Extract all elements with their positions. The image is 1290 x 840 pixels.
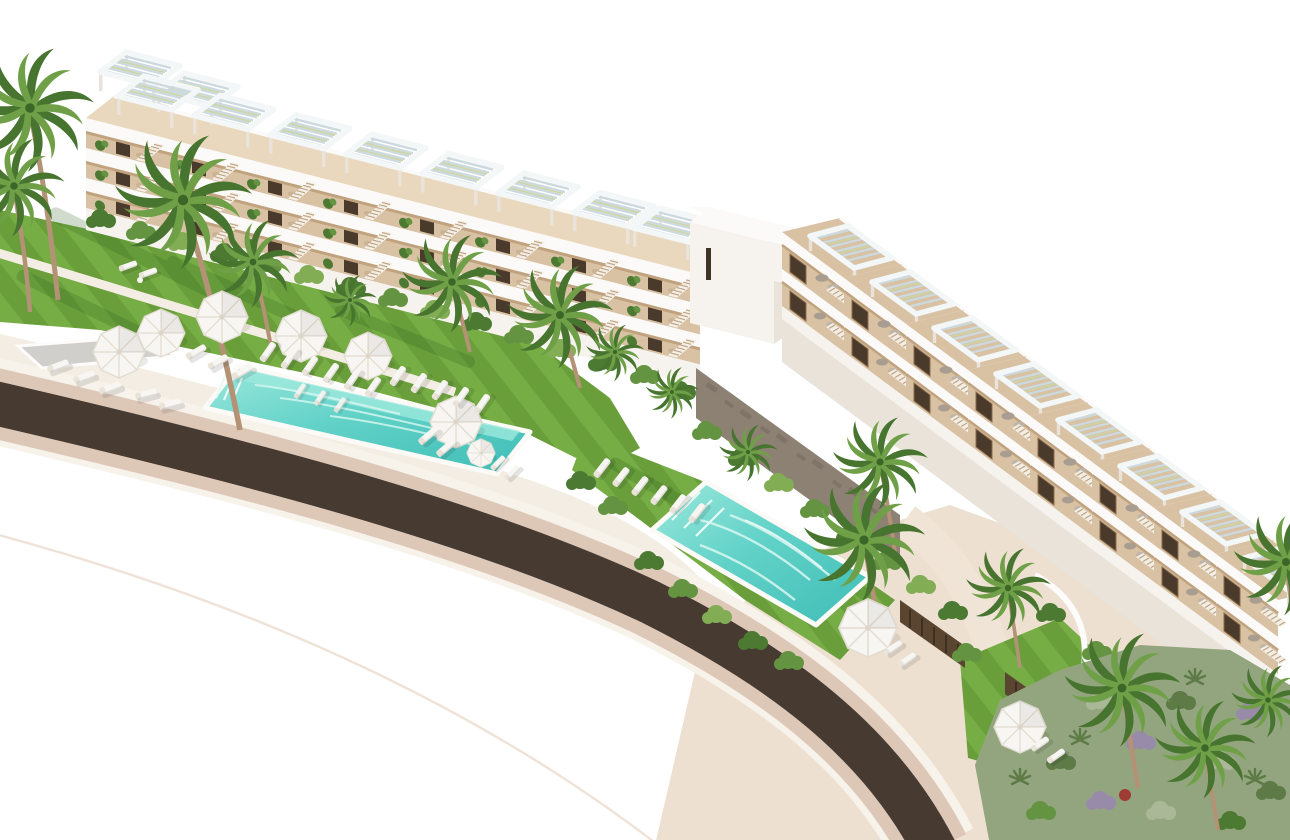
render-stage bbox=[0, 0, 1290, 840]
aerial-render bbox=[0, 0, 1290, 840]
